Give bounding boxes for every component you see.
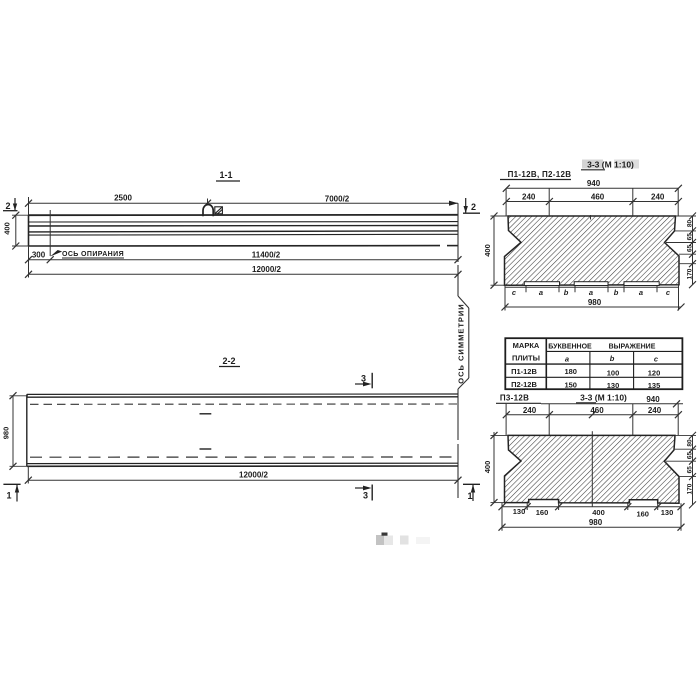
svg-text:170: 170 <box>686 268 693 279</box>
svg-text:240: 240 <box>523 406 537 415</box>
svg-text:ОСЬ СИММЕТРИИ: ОСЬ СИММЕТРИИ <box>457 303 466 383</box>
svg-text:1: 1 <box>467 491 472 501</box>
svg-text:ВЫРАЖЕНИЕ: ВЫРАЖЕНИЕ <box>609 343 656 350</box>
svg-text:80: 80 <box>687 220 694 228</box>
svg-text:ПЛИТЫ: ПЛИТЫ <box>512 354 540 363</box>
svg-text:980: 980 <box>2 427 11 440</box>
svg-text:7000/2: 7000/2 <box>325 195 350 204</box>
svg-text:160: 160 <box>636 510 649 519</box>
svg-text:3-3 (М 1:10): 3-3 (М 1:10) <box>580 393 627 403</box>
svg-text:2500: 2500 <box>114 194 132 203</box>
svg-text:11400/2: 11400/2 <box>252 251 281 260</box>
svg-text:a: a <box>539 288 543 297</box>
svg-text:П1-12В, П2-12В: П1-12В, П2-12В <box>508 170 572 179</box>
svg-text:3: 3 <box>363 491 368 501</box>
svg-text:180: 180 <box>564 367 577 376</box>
svg-text:b: b <box>610 354 615 363</box>
svg-text:130: 130 <box>513 507 526 516</box>
svg-text:a: a <box>639 288 643 297</box>
svg-text:240: 240 <box>651 193 665 202</box>
svg-text:130: 130 <box>661 508 674 517</box>
svg-text:2: 2 <box>5 201 10 211</box>
svg-text:130: 130 <box>607 381 620 390</box>
svg-text:1: 1 <box>6 491 11 501</box>
svg-text:240: 240 <box>522 193 536 202</box>
svg-text:ОСЬ ОПИРАНИЯ: ОСЬ ОПИРАНИЯ <box>62 251 124 258</box>
svg-text:400: 400 <box>483 244 492 257</box>
svg-text:65: 65 <box>687 233 694 241</box>
svg-text:400: 400 <box>483 461 492 474</box>
svg-text:a: a <box>589 288 593 297</box>
svg-text:170: 170 <box>686 483 693 494</box>
svg-text:П2-12В: П2-12В <box>511 380 537 389</box>
svg-text:2: 2 <box>471 202 476 212</box>
svg-text:П1-12В: П1-12В <box>511 367 537 376</box>
svg-text:65: 65 <box>687 466 694 474</box>
svg-text:300: 300 <box>32 251 46 260</box>
svg-text:100: 100 <box>607 369 620 378</box>
svg-text:65: 65 <box>687 244 694 252</box>
svg-text:460: 460 <box>591 193 605 202</box>
svg-text:b: b <box>564 288 569 297</box>
svg-text:12000/2: 12000/2 <box>239 471 268 480</box>
svg-text:460: 460 <box>590 406 604 415</box>
svg-text:980: 980 <box>588 298 602 307</box>
svg-text:12000/2: 12000/2 <box>252 265 281 274</box>
svg-text:a: a <box>565 355 569 364</box>
svg-text:980: 980 <box>589 518 603 527</box>
svg-text:400: 400 <box>3 222 12 235</box>
svg-text:МАРКА: МАРКА <box>513 341 540 350</box>
svg-text:3-3 (М 1:10): 3-3 (М 1:10) <box>587 160 634 170</box>
svg-text:b: b <box>614 288 619 297</box>
svg-text:120: 120 <box>648 369 661 378</box>
svg-text:240: 240 <box>648 406 662 415</box>
svg-text:940: 940 <box>587 179 601 188</box>
svg-text:1-1: 1-1 <box>219 170 232 180</box>
svg-text:65: 65 <box>687 452 694 460</box>
svg-text:2-2: 2-2 <box>222 356 235 366</box>
svg-text:80: 80 <box>687 439 694 447</box>
svg-text:160: 160 <box>536 508 549 517</box>
svg-text:135: 135 <box>648 381 661 390</box>
svg-text:150: 150 <box>564 381 577 390</box>
svg-text:940: 940 <box>646 395 660 404</box>
svg-text:400: 400 <box>592 508 605 517</box>
svg-text:БУКВЕННОЕ: БУКВЕННОЕ <box>548 343 592 350</box>
svg-text:П3-12В: П3-12В <box>500 394 529 403</box>
svg-text:3: 3 <box>361 374 366 384</box>
